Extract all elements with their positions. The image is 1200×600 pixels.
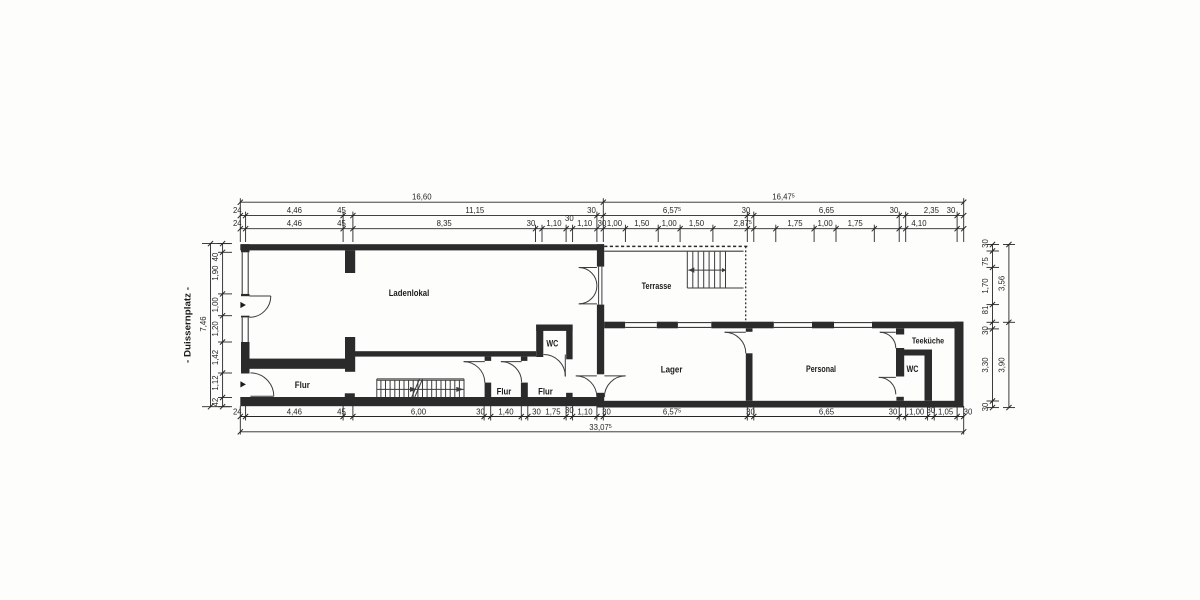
svg-text:Flur: Flur — [497, 386, 512, 396]
svg-text:1,10: 1,10 — [577, 219, 593, 228]
svg-text:30: 30 — [532, 408, 541, 417]
svg-text:7,46: 7,46 — [199, 316, 208, 331]
svg-text:30: 30 — [527, 219, 536, 228]
svg-text:1,05: 1,05 — [938, 408, 954, 417]
svg-text:1,10: 1,10 — [577, 408, 593, 417]
svg-text:30: 30 — [587, 206, 596, 215]
svg-text:1,90: 1,90 — [211, 265, 220, 281]
svg-text:Flur: Flur — [295, 380, 311, 390]
svg-text:Teeküche: Teeküche — [912, 337, 945, 346]
svg-text:1,75: 1,75 — [787, 219, 803, 228]
svg-text:30: 30 — [981, 402, 990, 411]
svg-text:3,90: 3,90 — [997, 357, 1006, 373]
svg-text:75: 75 — [981, 257, 990, 266]
svg-text:45: 45 — [337, 408, 346, 417]
svg-text:WC: WC — [546, 339, 558, 349]
svg-text:1,70: 1,70 — [981, 278, 990, 294]
svg-text:1,12: 1,12 — [211, 375, 220, 390]
svg-text:30: 30 — [889, 408, 898, 417]
svg-text:30: 30 — [890, 206, 899, 215]
svg-text:1,00: 1,00 — [607, 219, 623, 228]
svg-text:4,46: 4,46 — [287, 408, 302, 417]
svg-text:1,00: 1,00 — [909, 408, 925, 417]
svg-text:24: 24 — [233, 219, 242, 228]
svg-text:Flur: Flur — [538, 386, 553, 396]
svg-text:1,00: 1,00 — [211, 297, 220, 313]
svg-text:6,65: 6,65 — [819, 206, 835, 215]
svg-text:1,00: 1,00 — [662, 219, 678, 228]
svg-text:33,075: 33,075 — [589, 423, 612, 432]
svg-text:Terrasse: Terrasse — [642, 281, 672, 291]
svg-text:11,15: 11,15 — [465, 206, 485, 215]
svg-text:1,50: 1,50 — [634, 219, 650, 228]
svg-text:3,30: 3,30 — [981, 357, 990, 373]
svg-text:WC: WC — [907, 364, 920, 374]
svg-text:30: 30 — [565, 214, 574, 223]
svg-text:1,42: 1,42 — [211, 350, 220, 365]
svg-text:1,40: 1,40 — [498, 408, 514, 417]
svg-text:1,75: 1,75 — [848, 219, 864, 228]
svg-text:30: 30 — [981, 326, 990, 335]
svg-text:8,35: 8,35 — [437, 219, 453, 228]
svg-text:Personal: Personal — [806, 364, 836, 374]
svg-text:16,60: 16,60 — [412, 193, 432, 202]
svg-text:3,56: 3,56 — [997, 276, 1006, 291]
svg-text:Lager: Lager — [661, 364, 683, 374]
svg-text:40: 40 — [211, 252, 220, 261]
svg-text:1,00: 1,00 — [818, 219, 834, 228]
svg-text:30: 30 — [947, 206, 956, 215]
svg-text:81: 81 — [981, 306, 990, 315]
svg-text:Ladenlokal: Ladenlokal — [389, 288, 430, 298]
svg-text:- Duissernplatz -: - Duissernplatz - — [183, 287, 194, 363]
svg-text:6,65: 6,65 — [819, 408, 835, 417]
svg-text:1,50: 1,50 — [689, 219, 705, 228]
svg-text:1,10: 1,10 — [546, 219, 562, 228]
svg-text:4,46: 4,46 — [287, 206, 302, 215]
svg-text:24: 24 — [233, 206, 242, 215]
svg-text:1,75: 1,75 — [545, 408, 561, 417]
svg-text:4,10: 4,10 — [911, 219, 927, 228]
svg-text:6,00: 6,00 — [411, 408, 427, 417]
svg-text:30: 30 — [981, 239, 990, 248]
svg-text:4,46: 4,46 — [287, 219, 302, 228]
svg-text:16,475: 16,475 — [772, 193, 795, 202]
svg-text:2,35: 2,35 — [924, 206, 940, 215]
svg-text:42: 42 — [211, 398, 220, 407]
svg-text:1,20: 1,20 — [211, 321, 220, 337]
